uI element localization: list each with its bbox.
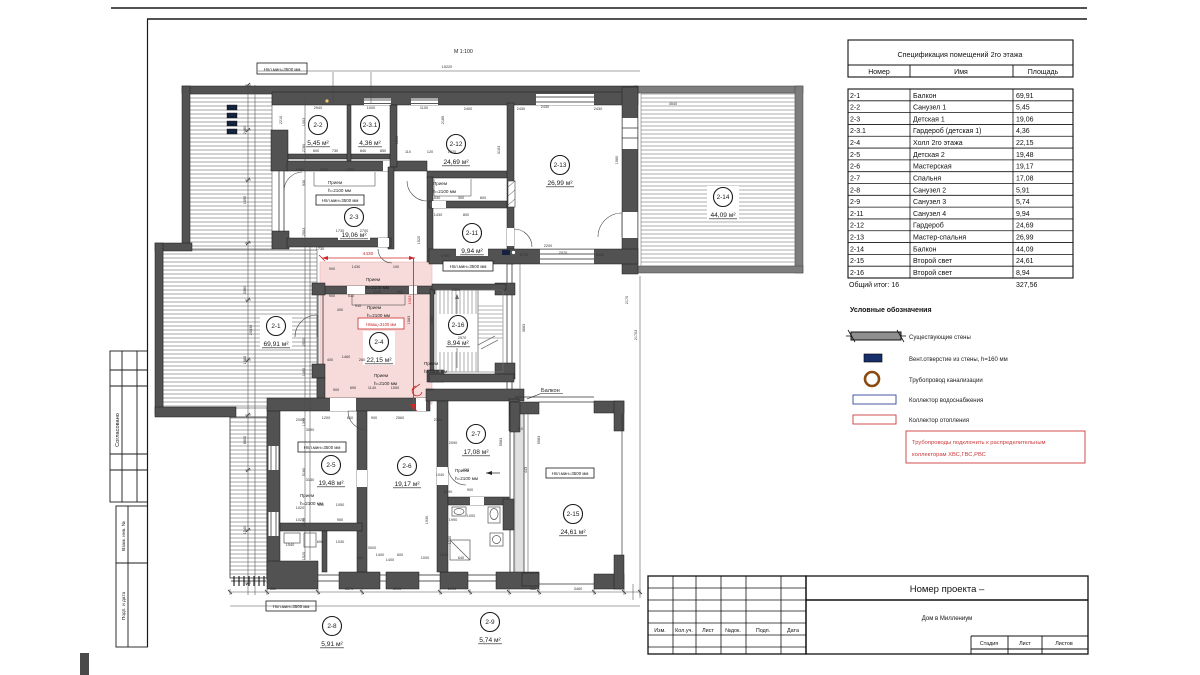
svg-text:510: 510: [348, 294, 354, 298]
svg-text:2-8: 2-8: [850, 187, 860, 194]
svg-text:М 1:100: М 1:100: [454, 49, 473, 55]
svg-text:2200: 2200: [596, 253, 604, 257]
svg-text:260: 260: [359, 358, 365, 362]
svg-text:2-7: 2-7: [471, 431, 481, 438]
svg-text:20830: 20830: [249, 325, 253, 336]
svg-text:Гардероб (детская 1): Гардероб (детская 1): [913, 127, 982, 135]
svg-text:2210: 2210: [279, 116, 283, 124]
svg-text:24,69: 24,69: [1016, 223, 1034, 230]
svg-text:24,61: 24,61: [1016, 258, 1034, 265]
svg-text:№док.: №док.: [725, 628, 741, 634]
svg-text:17,08: 17,08: [1016, 175, 1034, 182]
svg-text:2170: 2170: [625, 296, 629, 304]
svg-text:h=2100 мм: h=2100 мм: [455, 476, 478, 481]
svg-text:1520: 1520: [448, 150, 456, 154]
svg-text:19,17: 19,17: [1016, 164, 1034, 171]
svg-text:920: 920: [463, 468, 469, 472]
svg-text:2-3.1: 2-3.1: [850, 128, 866, 135]
svg-text:610: 610: [347, 416, 353, 420]
svg-text:Существующие стены: Существующие стены: [909, 335, 971, 341]
svg-text:1000: 1000: [367, 106, 375, 110]
svg-text:930: 930: [302, 180, 306, 186]
svg-text:Спецификация помещений 2го эта: Спецификация помещений 2го этажа: [897, 50, 1022, 59]
svg-text:Холл 2го этажа: Холл 2го этажа: [913, 140, 963, 147]
svg-text:Нпмщ=3100 мм: Нпмщ=3100 мм: [366, 322, 396, 327]
svg-text:120: 120: [427, 150, 433, 154]
svg-text:2-8: 2-8: [327, 623, 337, 630]
svg-text:660: 660: [270, 587, 276, 591]
svg-text:960: 960: [530, 587, 536, 591]
svg-text:600: 600: [357, 556, 363, 560]
svg-text:2300: 2300: [434, 418, 442, 422]
svg-text:1050: 1050: [346, 168, 354, 172]
svg-text:Стадия: Стадия: [980, 641, 998, 647]
svg-text:5,74: 5,74: [1016, 199, 1030, 206]
svg-text:2400: 2400: [464, 107, 472, 111]
svg-text:24,69 м²: 24,69 м²: [443, 159, 469, 166]
svg-text:5180: 5180: [302, 468, 306, 476]
svg-text:Прием: Прием: [433, 181, 447, 186]
svg-text:2-6: 2-6: [402, 463, 412, 470]
svg-text:1583: 1583: [407, 295, 412, 305]
svg-text:3370: 3370: [345, 587, 353, 591]
svg-text:19,48 м²: 19,48 м²: [318, 480, 344, 487]
svg-text:1730: 1730: [336, 229, 344, 233]
svg-text:2-1: 2-1: [850, 93, 860, 100]
svg-text:900: 900: [467, 488, 473, 492]
svg-text:1730: 1730: [448, 536, 452, 544]
svg-text:1560: 1560: [243, 356, 247, 364]
svg-text:Трубопровод канализации: Трубопровод канализации: [909, 378, 983, 384]
svg-text:4,36: 4,36: [1016, 128, 1030, 135]
svg-text:Балкон: Балкон: [541, 388, 560, 394]
svg-text:300: 300: [458, 196, 464, 200]
svg-text:2090: 2090: [449, 441, 457, 445]
svg-text:2503: 2503: [302, 228, 306, 236]
svg-text:4540: 4540: [669, 102, 677, 106]
svg-text:3130: 3130: [306, 478, 314, 482]
svg-text:2-13: 2-13: [850, 235, 864, 242]
svg-text:19,48: 19,48: [1016, 152, 1034, 159]
svg-text:1520: 1520: [302, 552, 306, 560]
svg-text:1040: 1040: [436, 473, 444, 477]
svg-text:Прием: Прием: [424, 361, 438, 366]
svg-text:Изм.: Изм.: [654, 628, 666, 634]
svg-text:8,94: 8,94: [1016, 270, 1030, 277]
svg-text:900: 900: [371, 416, 377, 420]
svg-text:1430: 1430: [434, 213, 442, 217]
svg-text:Мастерская: Мастерская: [913, 164, 952, 171]
svg-text:Подп.: Подп.: [756, 628, 770, 634]
svg-text:Взам. инв. №: Взам. инв. №: [121, 521, 127, 551]
svg-text:2-9: 2-9: [485, 619, 495, 626]
svg-text:h=2100 мм: h=2100 мм: [328, 188, 351, 193]
svg-text:1020: 1020: [296, 506, 304, 510]
svg-text:Номер: Номер: [868, 69, 890, 76]
svg-text:900: 900: [397, 290, 403, 294]
svg-text:730: 730: [332, 149, 338, 153]
svg-text:1390: 1390: [302, 418, 306, 426]
svg-text:2100: 2100: [373, 290, 381, 294]
svg-text:600: 600: [317, 540, 323, 544]
svg-text:9,94: 9,94: [1016, 211, 1030, 218]
svg-text:2-3: 2-3: [349, 214, 359, 221]
svg-text:8,94 м²: 8,94 м²: [447, 340, 469, 347]
svg-text:1730: 1730: [316, 247, 324, 251]
svg-text:Подп. и дата: Подп. и дата: [121, 592, 127, 621]
svg-text:2430: 2430: [594, 107, 602, 111]
svg-text:Второй свет: Второй свет: [913, 269, 953, 277]
svg-text:Hпл.мин=3500 мм: Hпл.мин=3500 мм: [322, 198, 359, 203]
svg-text:2-11: 2-11: [466, 230, 479, 237]
svg-text:2-9: 2-9: [850, 199, 860, 206]
svg-text:3460: 3460: [574, 587, 582, 591]
svg-text:Вент.отверстие из стены, h=160: Вент.отверстие из стены, h=160 мм: [909, 357, 1008, 363]
svg-text:950: 950: [337, 518, 343, 522]
svg-text:44,09 м²: 44,09 м²: [710, 212, 736, 219]
svg-text:1090: 1090: [444, 490, 452, 494]
svg-text:19,06: 19,06: [1016, 116, 1034, 123]
svg-text:1140: 1140: [368, 386, 376, 390]
svg-text:2700: 2700: [360, 229, 368, 233]
svg-text:2940: 2940: [314, 106, 322, 110]
svg-text:2570: 2570: [458, 336, 466, 340]
svg-text:Санузел 3: Санузел 3: [913, 199, 946, 206]
svg-text:6800: 6800: [243, 436, 247, 444]
svg-text:1003: 1003: [302, 118, 306, 126]
svg-text:800: 800: [463, 213, 469, 217]
svg-text:44,09: 44,09: [1016, 246, 1034, 253]
svg-text:2560: 2560: [396, 416, 404, 420]
svg-text:17,08 м²: 17,08 м²: [463, 449, 489, 456]
svg-text:26,99: 26,99: [1016, 235, 1034, 242]
svg-text:19,06 м²: 19,06 м²: [341, 232, 367, 239]
svg-text:2-5: 2-5: [326, 462, 336, 469]
svg-text:2-11: 2-11: [850, 211, 864, 218]
svg-text:2-16: 2-16: [452, 322, 465, 329]
svg-text:2570: 2570: [559, 251, 567, 255]
svg-text:Согласовано: Согласовано: [115, 413, 121, 447]
svg-text:850: 850: [380, 149, 386, 153]
svg-text:Условные обозначения: Условные обозначения: [850, 306, 932, 314]
svg-text:Листов: Листов: [1055, 641, 1073, 647]
svg-text:Прием: Прием: [374, 373, 388, 378]
svg-text:2-4: 2-4: [850, 140, 860, 147]
svg-text:Балкон: Балкон: [913, 246, 937, 253]
svg-text:2480: 2480: [243, 126, 247, 134]
svg-text:2500: 2500: [302, 338, 306, 346]
svg-text:Общий итог: 16: Общий итог: 16: [849, 281, 899, 289]
svg-text:1460: 1460: [342, 355, 350, 359]
svg-text:1200: 1200: [440, 553, 448, 557]
svg-text:840: 840: [360, 149, 366, 153]
svg-text:h=2100 мм: h=2100 мм: [424, 369, 447, 374]
svg-text:1583: 1583: [407, 316, 411, 324]
svg-text:2185: 2185: [441, 116, 445, 124]
svg-text:3163: 3163: [497, 146, 501, 154]
svg-text:1690: 1690: [395, 136, 399, 144]
svg-text:2-15: 2-15: [567, 511, 580, 518]
svg-text:Прием: Прием: [367, 305, 381, 310]
svg-text:2-5: 2-5: [850, 152, 860, 159]
svg-text:Коллектор отопления: Коллектор отопления: [909, 418, 969, 424]
svg-text:2200: 2200: [544, 244, 552, 248]
svg-text:1530: 1530: [432, 196, 440, 200]
svg-text:2-16: 2-16: [850, 270, 864, 277]
svg-text:69,91: 69,91: [1016, 93, 1034, 100]
svg-text:2-3: 2-3: [850, 116, 860, 123]
svg-text:3683: 3683: [522, 324, 526, 332]
svg-text:22,15: 22,15: [1016, 140, 1034, 147]
svg-text:600: 600: [397, 553, 403, 557]
svg-text:1930: 1930: [425, 516, 429, 524]
svg-text:443: 443: [524, 467, 528, 473]
svg-text:1100: 1100: [420, 106, 428, 110]
svg-text:Спальня: Спальня: [913, 175, 941, 182]
svg-text:327,56: 327,56: [1016, 282, 1038, 289]
svg-text:Дом в Миллениум: Дом в Миллениум: [922, 616, 973, 622]
svg-text:2-4: 2-4: [374, 339, 384, 346]
svg-text:Второй свет: Второй свет: [913, 257, 953, 265]
svg-text:910: 910: [355, 304, 361, 308]
svg-text:Дата: Дата: [787, 628, 799, 634]
svg-text:1960: 1960: [615, 156, 619, 164]
svg-text:коллекторам ХВС,ГВС,РВС: коллекторам ХВС,ГВС,РВС: [912, 452, 986, 458]
svg-text:Имя: Имя: [954, 69, 968, 76]
svg-text:19,17 м²: 19,17 м²: [394, 481, 420, 488]
svg-text:2-12: 2-12: [850, 223, 864, 230]
svg-text:1520: 1520: [417, 236, 421, 244]
svg-text:Балкон: Балкон: [913, 93, 937, 100]
svg-text:1540: 1540: [243, 526, 247, 534]
svg-text:900: 900: [329, 267, 335, 271]
svg-text:Hпл.мин=3500 мм: Hпл.мин=3500 мм: [273, 604, 310, 609]
svg-text:5,91: 5,91: [1016, 187, 1030, 194]
svg-text:1050: 1050: [336, 503, 344, 507]
svg-text:1200: 1200: [322, 416, 330, 420]
svg-text:Детская 2: Детская 2: [913, 152, 945, 159]
svg-text:1000: 1000: [421, 556, 429, 560]
svg-text:Гардероб: Гардероб: [913, 222, 944, 230]
svg-text:22,15 м²: 22,15 м²: [366, 357, 392, 364]
svg-text:1660: 1660: [320, 168, 328, 172]
svg-text:2090: 2090: [448, 587, 456, 591]
svg-text:1550: 1550: [391, 386, 399, 390]
svg-text:Мастер-спальня: Мастер-спальня: [913, 235, 966, 242]
svg-text:2700: 2700: [520, 253, 528, 257]
svg-text:2-14: 2-14: [850, 246, 864, 253]
svg-text:2300: 2300: [452, 288, 460, 292]
svg-text:4,36 м²: 4,36 м²: [359, 140, 381, 147]
svg-text:1400: 1400: [386, 558, 394, 562]
svg-text:640: 640: [458, 556, 464, 560]
svg-text:Лист: Лист: [702, 628, 714, 634]
svg-text:2190: 2190: [302, 518, 306, 526]
svg-text:3000: 3000: [368, 546, 376, 550]
svg-text:800: 800: [480, 196, 486, 200]
svg-text:2-2: 2-2: [313, 122, 323, 129]
svg-text:Hпл.мин=3500 мм: Hпл.мин=3500 мм: [450, 264, 487, 269]
svg-text:1000: 1000: [467, 514, 475, 518]
svg-text:1000: 1000: [296, 168, 304, 172]
svg-text:2-6: 2-6: [850, 164, 860, 171]
svg-text:Прием: Прием: [300, 493, 314, 498]
svg-text:2-7: 2-7: [850, 175, 860, 182]
svg-text:2-12: 2-12: [450, 141, 463, 148]
svg-text:Лист: Лист: [1019, 641, 1031, 647]
svg-text:Санузел 2: Санузел 2: [913, 187, 946, 194]
svg-text:900: 900: [329, 294, 335, 298]
svg-text:690: 690: [350, 386, 356, 390]
svg-text:5,91 м²: 5,91 м²: [321, 641, 343, 648]
svg-text:9,94 м²: 9,94 м²: [461, 248, 483, 255]
svg-text:5583: 5583: [499, 438, 503, 446]
svg-text:3090: 3090: [306, 428, 314, 432]
svg-text:2-3.1: 2-3.1: [363, 122, 378, 129]
svg-text:1690: 1690: [243, 196, 247, 204]
svg-text:Номер проекта –: Номер проекта –: [910, 584, 985, 595]
svg-text:5583: 5583: [537, 436, 541, 444]
svg-text:h=2100 мм: h=2100 мм: [433, 189, 456, 194]
svg-text:Санузел 4: Санузел 4: [913, 211, 946, 218]
svg-text:2430: 2430: [517, 107, 525, 111]
svg-text:3380: 3380: [243, 286, 247, 294]
svg-text:2-2: 2-2: [850, 105, 860, 112]
svg-text:5,45: 5,45: [1016, 105, 1030, 112]
svg-text:15220: 15220: [442, 65, 453, 69]
svg-text:21703: 21703: [634, 330, 638, 341]
svg-text:Трубопроводы подключить к расп: Трубопроводы подключить к распределитель…: [912, 440, 1045, 446]
svg-text:2-14: 2-14: [717, 194, 730, 201]
svg-text:Hпл.мин=3500 мм: Hпл.мин=3500 мм: [304, 445, 341, 450]
svg-text:4430: 4430: [363, 251, 374, 257]
svg-text:1030: 1030: [336, 540, 344, 544]
svg-text:Коллектор водоснабжения: Коллектор водоснабжения: [909, 398, 983, 404]
svg-text:h=2100 мм: h=2100 мм: [367, 313, 390, 318]
svg-text:Кол.уч.: Кол.уч.: [675, 628, 693, 634]
svg-text:Площадь: Площадь: [1028, 69, 1059, 76]
svg-text:5,45 м²: 5,45 м²: [307, 140, 329, 147]
svg-text:110: 110: [405, 150, 411, 154]
svg-text:26,99 м²: 26,99 м²: [547, 180, 573, 187]
svg-text:1540: 1540: [286, 543, 294, 547]
svg-text:2780: 2780: [302, 144, 306, 152]
svg-text:3750: 3750: [441, 254, 449, 258]
svg-text:24,61 м²: 24,61 м²: [560, 529, 586, 536]
svg-text:2-15: 2-15: [850, 258, 864, 265]
svg-text:100: 100: [393, 265, 399, 269]
svg-text:1430: 1430: [352, 265, 360, 269]
svg-text:600: 600: [313, 149, 319, 153]
svg-text:5,74 м²: 5,74 м²: [479, 637, 501, 644]
svg-text:Санузел 1: Санузел 1: [913, 105, 946, 112]
svg-text:2300: 2300: [426, 388, 434, 392]
svg-text:110: 110: [517, 427, 523, 431]
svg-text:900: 900: [333, 388, 339, 392]
svg-text:69,91 м²: 69,91 м²: [263, 341, 289, 348]
svg-text:2430: 2430: [541, 105, 549, 109]
svg-text:1460: 1460: [302, 368, 306, 376]
svg-text:1990: 1990: [449, 518, 457, 522]
svg-text:Прием: Прием: [328, 180, 342, 185]
svg-text:2-1: 2-1: [271, 323, 281, 330]
svg-text:Детская 1: Детская 1: [913, 116, 945, 123]
svg-text:3000: 3000: [393, 587, 401, 591]
svg-text:600: 600: [318, 503, 324, 507]
svg-text:2-13: 2-13: [554, 162, 567, 169]
svg-text:Hпл.мин=3500 мм: Hпл.мин=3500 мм: [552, 471, 589, 476]
svg-text:Прием: Прием: [366, 277, 380, 282]
svg-text:400: 400: [327, 358, 333, 362]
svg-text:1583: 1583: [430, 316, 434, 324]
svg-text:400: 400: [337, 308, 343, 312]
svg-text:1400: 1400: [376, 553, 384, 557]
